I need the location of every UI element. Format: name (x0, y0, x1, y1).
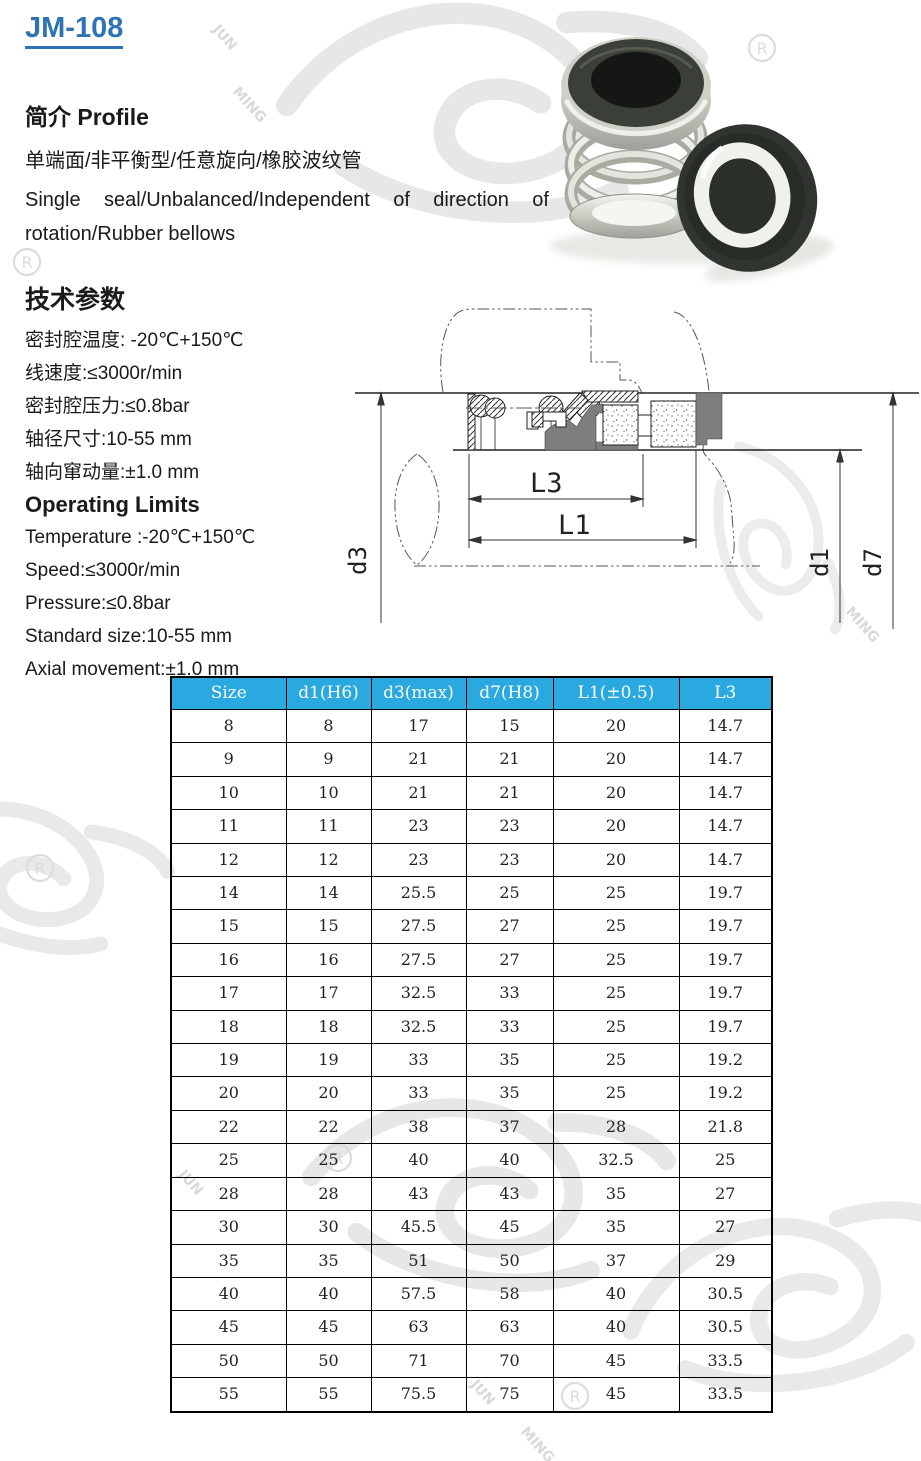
cell-l3: 19.7 (679, 977, 772, 1010)
table-header-cell: Size (171, 677, 286, 710)
cell-d3: 32.5 (371, 977, 466, 1010)
cell-size: 20 (171, 1077, 286, 1110)
cell-d3: 23 (371, 810, 466, 843)
seal-head (561, 37, 711, 150)
cell-d3: 45.5 (371, 1211, 466, 1244)
cell-d7: 27 (466, 910, 553, 943)
cell-l3: 14.7 (679, 843, 772, 876)
cell-d3: 25.5 (371, 877, 466, 910)
cell-size: 14 (171, 877, 286, 910)
dim-label-d7: d7 (859, 548, 887, 577)
cell-l1: 45 (553, 1378, 679, 1412)
cell-size: 11 (171, 810, 286, 843)
cell-l1: 40 (553, 1277, 679, 1310)
cell-d7: 27 (466, 943, 553, 976)
dim-label-l3: L3 (530, 468, 563, 499)
cell-l1: 20 (553, 776, 679, 809)
cell-size: 25 (171, 1144, 286, 1177)
cell-d7: 35 (466, 1077, 553, 1110)
cross-section-diagram: L3 L1 d3 d1 d7 (330, 293, 921, 680)
cell-size: 9 (171, 743, 286, 776)
seat-cup (696, 393, 722, 445)
cell-d7: 33 (466, 1010, 553, 1043)
cell-l1: 20 (553, 710, 679, 743)
cell-l3: 27 (679, 1177, 772, 1210)
cell-size: 17 (171, 977, 286, 1010)
cell-l3: 33.5 (679, 1344, 772, 1377)
cell-d1: 55 (286, 1378, 371, 1412)
cell-l3: 25 (679, 1144, 772, 1177)
page-title: JM-108 (25, 12, 123, 49)
table-header-cell: d1(H6) (286, 677, 371, 710)
cell-l3: 27 (679, 1211, 772, 1244)
seal-assembly (468, 391, 722, 450)
cell-d3: 43 (371, 1177, 466, 1210)
operating-limit-line: Standard size:10-55 mm (25, 620, 345, 653)
profile-heading: 简介 Profile (25, 98, 549, 132)
cell-d3: 21 (371, 743, 466, 776)
cell-d1: 15 (286, 910, 371, 943)
tech-spec-line: 轴径尺寸:10-55 mm (25, 423, 345, 456)
profile-section: 简介 Profile 单端面/非平衡型/任意旋向/橡胶波纹管 Single se… (25, 98, 549, 251)
cell-d7: 50 (466, 1244, 553, 1277)
cell-l3: 30.5 (679, 1277, 772, 1310)
cell-l3: 19.7 (679, 1010, 772, 1043)
table-row: 9 9 21 21 20 14.7 (171, 743, 772, 776)
table-row: 22 22 38 37 28 21.8 (171, 1110, 772, 1143)
cell-l1: 25 (553, 1010, 679, 1043)
dimension-table: Sized1(H6)d3(max)d7(H8)L1(±0.5)L3 8 8 17… (170, 676, 773, 1413)
cell-l1: 25 (553, 943, 679, 976)
table-header-cell: L3 (679, 677, 772, 710)
cell-d7: 25 (466, 877, 553, 910)
cell-d1: 9 (286, 743, 371, 776)
operating-limits-heading: Operating Limits (25, 492, 345, 518)
cell-d1: 50 (286, 1344, 371, 1377)
cell-d1: 20 (286, 1077, 371, 1110)
cell-d7: 58 (466, 1277, 553, 1310)
carbon-face (603, 405, 638, 445)
cell-l1: 28 (553, 1110, 679, 1143)
tech-params-section: 技术参数 密封腔温度: -20℃+150℃线速度:≤3000r/min密封腔压力… (25, 280, 345, 686)
tech-spec-line: 密封腔压力:≤0.8bar (25, 390, 345, 423)
cell-size: 45 (171, 1311, 286, 1344)
cell-d3: 33 (371, 1044, 466, 1077)
table-row: 14 14 25.5 25 25 19.7 (171, 877, 772, 910)
tech-spec-line: 密封腔温度: -20℃+150℃ (25, 324, 345, 357)
cell-size: 12 (171, 843, 286, 876)
table-body: 8 8 17 15 20 14.7 9 9 21 21 (171, 710, 772, 1412)
cell-d3: 23 (371, 843, 466, 876)
table-row: 12 12 23 23 20 14.7 (171, 843, 772, 876)
cell-size: 19 (171, 1044, 286, 1077)
cell-d1: 25 (286, 1144, 371, 1177)
cell-d3: 21 (371, 776, 466, 809)
cell-size: 35 (171, 1244, 286, 1277)
cell-d1: 19 (286, 1044, 371, 1077)
table-row: 16 16 27.5 27 25 19.7 (171, 943, 772, 976)
cell-size: 8 (171, 710, 286, 743)
cell-d7: 23 (466, 843, 553, 876)
cell-l3: 30.5 (679, 1311, 772, 1344)
cell-d1: 10 (286, 776, 371, 809)
cell-d1: 14 (286, 877, 371, 910)
cell-d1: 35 (286, 1244, 371, 1277)
cell-d7: 75 (466, 1378, 553, 1412)
stationary-seat (651, 401, 696, 447)
table-row: 30 30 45.5 45 35 27 (171, 1211, 772, 1244)
cell-l3: 33.5 (679, 1378, 772, 1412)
cell-d3: 57.5 (371, 1277, 466, 1310)
table-row: 10 10 21 21 20 14.7 (171, 776, 772, 809)
cell-size: 10 (171, 776, 286, 809)
cell-d1: 12 (286, 843, 371, 876)
operating-limit-line: Speed:≤3000r/min (25, 554, 345, 587)
face-step (638, 415, 651, 436)
cell-l3: 21.8 (679, 1110, 772, 1143)
cell-l1: 20 (553, 810, 679, 843)
cell-d3: 27.5 (371, 910, 466, 943)
cell-size: 50 (171, 1344, 286, 1377)
cell-d1: 40 (286, 1277, 371, 1310)
cell-d7: 15 (466, 710, 553, 743)
table-header-cell: d7(H8) (466, 677, 553, 710)
cell-l1: 25 (553, 910, 679, 943)
cell-d7: 21 (466, 776, 553, 809)
cell-l1: 25 (553, 877, 679, 910)
cell-l1: 35 (553, 1211, 679, 1244)
cell-d3: 38 (371, 1110, 466, 1143)
cell-d1: 8 (286, 710, 371, 743)
cell-l3: 19.7 (679, 910, 772, 943)
profile-line-zh: 单端面/非平衡型/任意旋向/橡胶波纹管 (25, 144, 549, 173)
dim-label-d1: d1 (806, 548, 834, 577)
table-row: 11 11 23 23 20 14.7 (171, 810, 772, 843)
cell-d3: 71 (371, 1344, 466, 1377)
cell-l1: 37 (553, 1244, 679, 1277)
cell-l3: 14.7 (679, 776, 772, 809)
tech-spec-line: 线速度:≤3000r/min (25, 357, 345, 390)
tech-params-heading: 技术参数 (25, 280, 345, 316)
operating-limit-line: Temperature :-20℃+150℃ (25, 521, 345, 554)
cell-l3: 19.7 (679, 943, 772, 976)
cell-l3: 19.2 (679, 1044, 772, 1077)
cell-d3: 75.5 (371, 1378, 466, 1412)
cell-d7: 37 (466, 1110, 553, 1143)
cell-l3: 14.7 (679, 743, 772, 776)
table-row: 50 50 71 70 45 33.5 (171, 1344, 772, 1377)
cell-d7: 70 (466, 1344, 553, 1377)
profile-line-en: Single seal/Unbalanced/Independent of di… (25, 183, 549, 251)
table-row: 15 15 27.5 27 25 19.7 (171, 910, 772, 943)
cell-d7: 43 (466, 1177, 553, 1210)
cell-l1: 32.5 (553, 1144, 679, 1177)
cell-l1: 25 (553, 977, 679, 1010)
product-photo (540, 8, 921, 300)
table-row: 17 17 32.5 33 25 19.7 (171, 977, 772, 1010)
operating-limit-line: Pressure:≤0.8bar (25, 587, 345, 620)
table-row: 20 20 33 35 25 19.2 (171, 1077, 772, 1110)
cell-d7: 33 (466, 977, 553, 1010)
cell-d3: 17 (371, 710, 466, 743)
table-row: 35 35 51 50 37 29 (171, 1244, 772, 1277)
tech-spec-line: 轴向窜动量:±1.0 mm (25, 456, 345, 489)
table-header-cell: L1(±0.5) (553, 677, 679, 710)
cell-size: 15 (171, 910, 286, 943)
cell-size: 30 (171, 1211, 286, 1244)
cell-d3: 33 (371, 1077, 466, 1110)
cell-l3: 14.7 (679, 710, 772, 743)
cell-d1: 28 (286, 1177, 371, 1210)
cell-d3: 63 (371, 1311, 466, 1344)
cell-l3: 19.7 (679, 877, 772, 910)
cell-d7: 40 (466, 1144, 553, 1177)
tech-params-list: 密封腔温度: -20℃+150℃线速度:≤3000r/min密封腔压力:≤0.8… (25, 324, 345, 489)
cell-d1: 22 (286, 1110, 371, 1143)
cell-d7: 23 (466, 810, 553, 843)
cell-l1: 25 (553, 1077, 679, 1110)
cell-d1: 17 (286, 977, 371, 1010)
cell-d1: 18 (286, 1010, 371, 1043)
cell-d3: 27.5 (371, 943, 466, 976)
cell-d3: 51 (371, 1244, 466, 1277)
table-row: 8 8 17 15 20 14.7 (171, 710, 772, 743)
table-row: 18 18 32.5 33 25 19.7 (171, 1010, 772, 1043)
cell-size: 16 (171, 943, 286, 976)
cell-l3: 14.7 (679, 810, 772, 843)
cell-d7: 35 (466, 1044, 553, 1077)
table-row: 45 45 63 63 40 30.5 (171, 1311, 772, 1344)
cell-d1: 45 (286, 1311, 371, 1344)
table-row: 55 55 75.5 75 45 33.5 (171, 1378, 772, 1412)
cell-size: 22 (171, 1110, 286, 1143)
retainer-band (582, 391, 638, 402)
dim-label-d3: d3 (344, 546, 372, 575)
cell-size: 40 (171, 1277, 286, 1310)
dim-label-l1: L1 (558, 510, 591, 541)
operating-limits-list: Temperature :-20℃+150℃Speed:≤3000r/minPr… (25, 521, 345, 686)
cell-d3: 32.5 (371, 1010, 466, 1043)
table-header-row: Sized1(H6)d3(max)d7(H8)L1(±0.5)L3 (171, 677, 772, 710)
table-row: 28 28 43 43 35 27 (171, 1177, 772, 1210)
cell-size: 18 (171, 1010, 286, 1043)
cell-d1: 16 (286, 943, 371, 976)
table-row: 40 40 57.5 58 40 30.5 (171, 1277, 772, 1310)
cell-l3: 19.2 (679, 1077, 772, 1110)
cell-d7: 63 (466, 1311, 553, 1344)
cell-d7: 21 (466, 743, 553, 776)
table-row: 25 25 40 40 32.5 25 (171, 1144, 772, 1177)
cell-l1: 45 (553, 1344, 679, 1377)
cell-size: 55 (171, 1378, 286, 1412)
table-row: 19 19 33 35 25 19.2 (171, 1044, 772, 1077)
table-header-cell: d3(max) (371, 677, 466, 710)
cell-l1: 20 (553, 743, 679, 776)
cell-l1: 35 (553, 1177, 679, 1210)
datasheet-page: R JUN MING MING JUN JUN MING (0, 0, 921, 1461)
cell-size: 28 (171, 1177, 286, 1210)
cell-d3: 40 (371, 1144, 466, 1177)
cell-l1: 25 (553, 1044, 679, 1077)
cell-d7: 45 (466, 1211, 553, 1244)
cell-d1: 30 (286, 1211, 371, 1244)
cell-d1: 11 (286, 810, 371, 843)
cell-l1: 20 (553, 843, 679, 876)
cell-l3: 29 (679, 1244, 772, 1277)
cell-l1: 40 (553, 1311, 679, 1344)
